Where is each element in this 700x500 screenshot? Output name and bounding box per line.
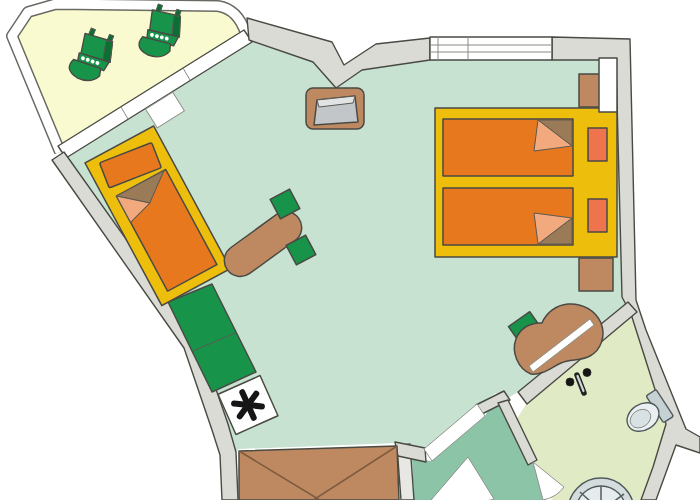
window-top (430, 37, 552, 60)
tv-unit (306, 88, 364, 129)
twin-bed (435, 108, 617, 257)
closet-crossed (239, 446, 399, 500)
wall-cabinet (599, 58, 617, 112)
nightstand-bottom (579, 258, 613, 291)
floor-plan (0, 0, 700, 500)
